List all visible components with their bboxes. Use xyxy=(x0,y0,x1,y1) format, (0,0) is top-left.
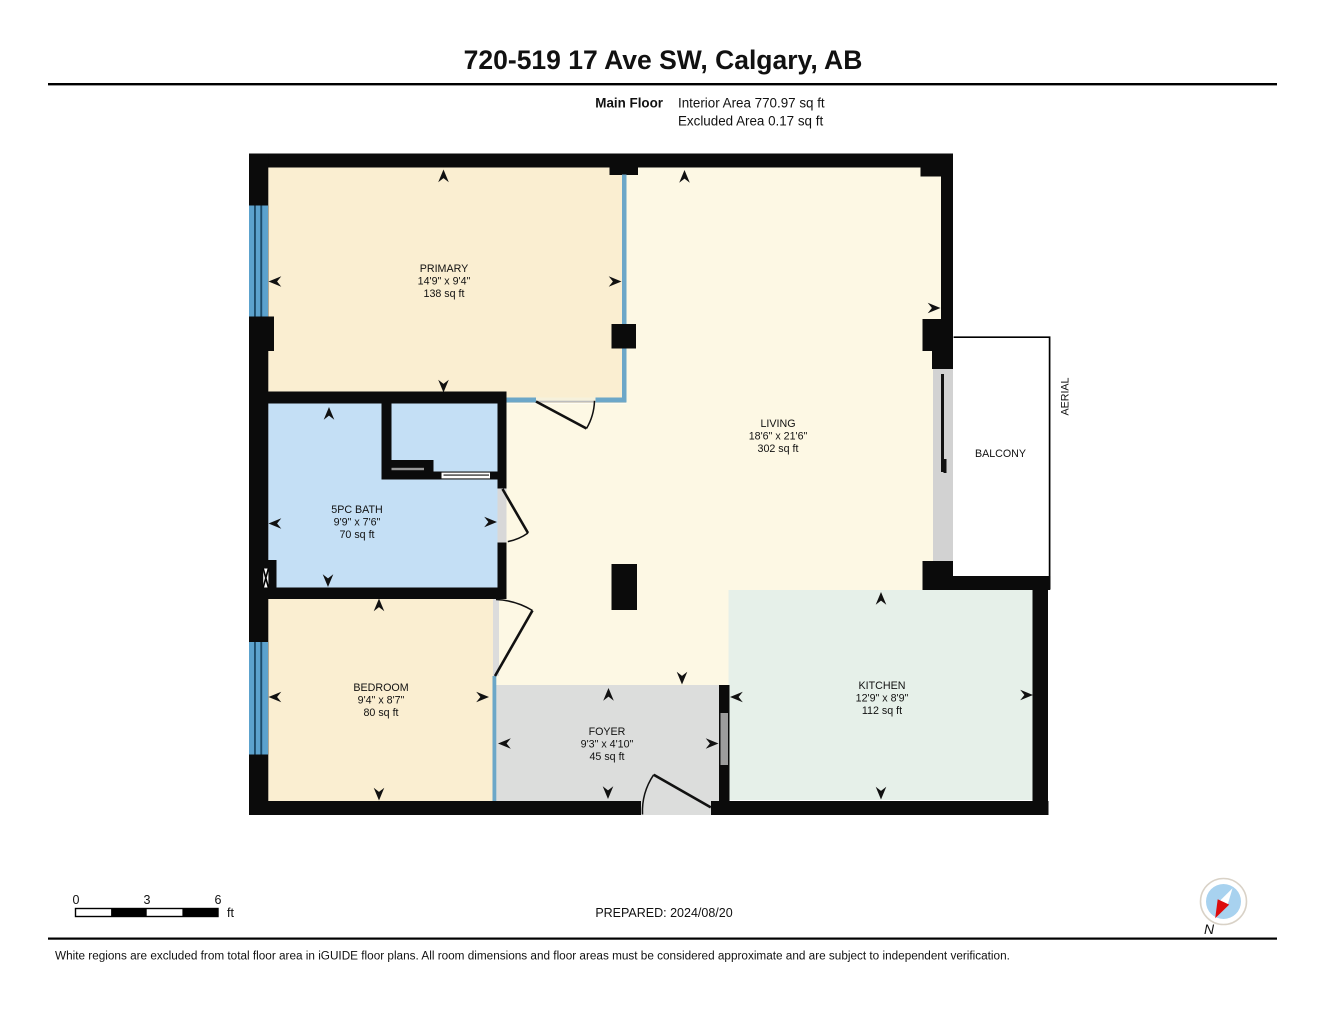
svg-text:18'6" x 21'6": 18'6" x 21'6" xyxy=(749,431,808,443)
svg-text:45 sq ft: 45 sq ft xyxy=(589,751,624,763)
svg-text:Interior Area 770.97 sq ft: Interior Area 770.97 sq ft xyxy=(678,96,825,111)
svg-text:FOYER: FOYER xyxy=(589,726,626,738)
svg-text:138 sq ft: 138 sq ft xyxy=(424,288,465,300)
svg-text:Main Floor: Main Floor xyxy=(595,96,663,111)
svg-text:302 sq ft: 302 sq ft xyxy=(758,443,799,455)
svg-text:70 sq ft: 70 sq ft xyxy=(339,529,374,541)
svg-text:9'4" x 8'7": 9'4" x 8'7" xyxy=(358,695,405,707)
svg-text:AERIAL: AERIAL xyxy=(1060,377,1072,415)
svg-text:Excluded Area 0.17 sq ft: Excluded Area 0.17 sq ft xyxy=(678,114,823,129)
svg-text:12'9" x 8'9": 12'9" x 8'9" xyxy=(856,693,909,705)
svg-text:PRIMARY: PRIMARY xyxy=(420,263,469,275)
svg-text:3: 3 xyxy=(144,893,151,907)
svg-text:9'9" x 7'6": 9'9" x 7'6" xyxy=(334,517,381,529)
svg-text:BEDROOM: BEDROOM xyxy=(353,682,408,694)
svg-text:0: 0 xyxy=(73,893,80,907)
svg-text:ft: ft xyxy=(227,906,234,920)
svg-text:720-519 17 Ave SW, Calgary, AB: 720-519 17 Ave SW, Calgary, AB xyxy=(464,45,863,75)
svg-text:112 sq ft: 112 sq ft xyxy=(862,705,902,717)
svg-text:BALCONY: BALCONY xyxy=(975,448,1026,460)
svg-text:14'9" x 9'4": 14'9" x 9'4" xyxy=(418,276,471,288)
svg-text:9'3" x 4'10": 9'3" x 4'10" xyxy=(581,739,634,751)
svg-text:LIVING: LIVING xyxy=(760,418,795,430)
svg-text:6: 6 xyxy=(215,893,222,907)
svg-text:N: N xyxy=(1204,921,1215,937)
svg-text:PREPARED: 2024/08/20: PREPARED: 2024/08/20 xyxy=(595,906,732,920)
svg-text:80 sq ft: 80 sq ft xyxy=(363,707,398,719)
svg-text:White regions are excluded fro: White regions are excluded from total fl… xyxy=(55,950,1010,963)
svg-text:5PC BATH: 5PC BATH xyxy=(331,504,382,516)
svg-text:KITCHEN: KITCHEN xyxy=(859,680,906,692)
